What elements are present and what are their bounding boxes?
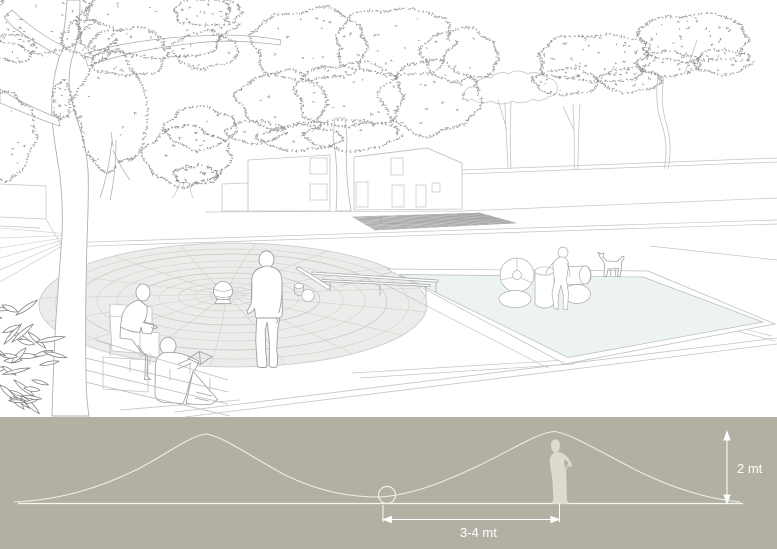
svg-text:3-4 mt: 3-4 mt (460, 525, 497, 540)
svg-text:2 mt: 2 mt (737, 461, 763, 476)
